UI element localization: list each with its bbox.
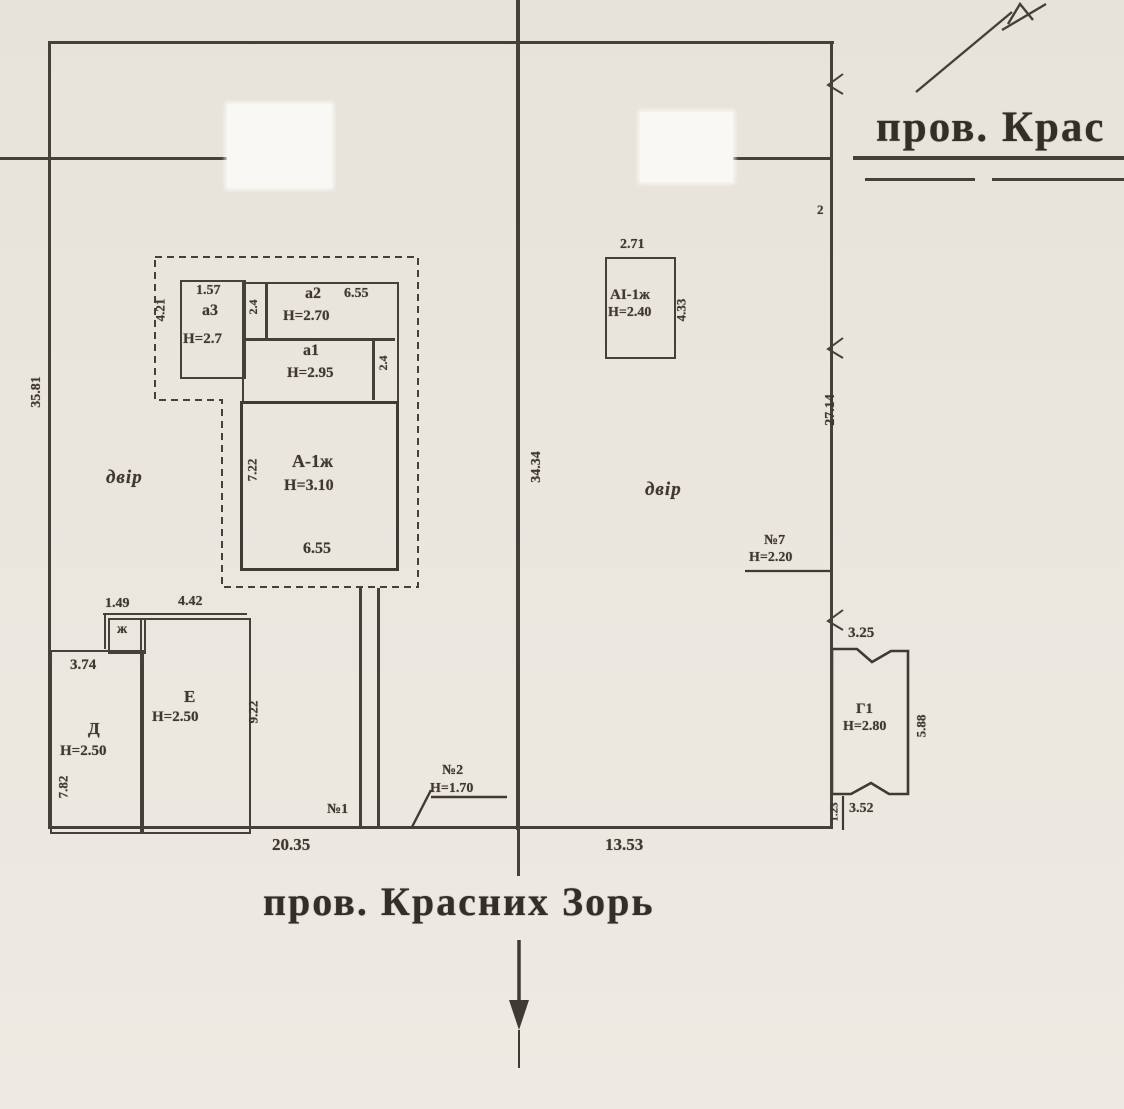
d-label: Д <box>88 720 100 737</box>
d-height: Н=2.50 <box>60 744 106 759</box>
street-line-dash-1 <box>865 178 975 181</box>
dim-road: 34.34 <box>530 451 544 483</box>
a1-label: а1 <box>303 343 319 359</box>
redaction-patch <box>640 112 733 182</box>
ai-width-dim: 2.71 <box>620 238 645 252</box>
road-centerline <box>516 0 520 830</box>
a3-height: Н=2.7 <box>183 332 222 347</box>
e-label: Е <box>184 688 195 705</box>
dim-bottom-right: 13.53 <box>605 836 643 853</box>
e-side-dim: 9.22 <box>247 701 260 724</box>
road-centerline-lower <box>517 830 520 876</box>
e-top-dim-2: 4.42 <box>178 595 203 609</box>
street-line-dash-2 <box>992 178 1124 181</box>
road-arrow-head <box>509 1000 529 1030</box>
d-top-dim: 3.74 <box>70 658 96 673</box>
ai-label: АІ-1ж <box>610 288 650 303</box>
boundary-point-number: 2 <box>817 203 824 216</box>
linework-overlay <box>0 0 1124 1109</box>
a3-side-dim: 4.21 <box>154 299 167 322</box>
gate-1-label: №1 <box>327 803 348 817</box>
yard-label-left: двір <box>106 468 143 487</box>
street-line-top-mid <box>733 157 832 160</box>
a3-width-dim: 1.57 <box>196 284 221 298</box>
zh-label: ж <box>117 623 127 637</box>
building-d-outline <box>50 650 144 834</box>
g1-side-dim: 5.88 <box>915 715 928 738</box>
g1-bottom-dim: 3.52 <box>849 802 874 816</box>
a1-strip-dim: 2.4 <box>377 356 389 371</box>
yard-label-right: двір <box>645 480 682 499</box>
a2-label: а2 <box>305 286 321 302</box>
dim-bottom-left: 20.35 <box>272 836 310 853</box>
dim-right-boundary: 27.14 <box>824 394 838 426</box>
plot-boundary-top <box>48 41 834 44</box>
a2-strip-dim: 2.4 <box>247 300 259 315</box>
scanned-site-plan: пров. Крас пров. Красних Зорь 35.81 34.3… <box>0 0 1124 1109</box>
a1-height: Н=2.95 <box>287 366 333 381</box>
building-e-outline <box>140 618 251 834</box>
ai-side-dim: 4.33 <box>675 299 688 322</box>
a-main-side-dim: 7.22 <box>246 459 259 482</box>
survey-diagonal-lines <box>916 4 1046 92</box>
g1-notch-dim: 1.23 <box>830 802 841 821</box>
e-top-dim-1: 1.49 <box>105 597 130 611</box>
street-line-top-left <box>0 157 228 160</box>
gate-1-line <box>377 588 380 827</box>
redaction-patch <box>227 104 332 188</box>
street-name-bottom: пров. Красних Зорь <box>263 882 655 922</box>
a2-width-dim: 6.55 <box>344 287 369 301</box>
e-top-dim-tick <box>104 613 106 649</box>
d-side-dim: 7.82 <box>57 776 70 799</box>
a3-label: а3 <box>202 303 218 319</box>
gate-1-line <box>359 588 362 827</box>
e-height: Н=2.50 <box>152 710 198 725</box>
a-main-label: А-1ж <box>292 452 333 470</box>
street-name-top: пров. Крас <box>876 106 1106 149</box>
fence-7-label: №7 <box>764 534 785 548</box>
e-top-dim-line <box>103 613 247 615</box>
g1-top-dim: 3.25 <box>848 626 874 641</box>
g1-height: Н=2.80 <box>843 720 886 734</box>
dim-left-boundary: 35.81 <box>30 376 44 408</box>
a-main-width-dim: 6.55 <box>303 541 331 557</box>
a2-strip-divider <box>265 282 268 338</box>
g1-label: Г1 <box>856 702 873 717</box>
a1-strip-divider <box>372 338 375 400</box>
gate-2-height: Н=1.70 <box>430 782 473 796</box>
gate-2-label: №2 <box>442 764 463 778</box>
a-main-height: Н=3.10 <box>284 478 334 494</box>
a2-height: Н=2.70 <box>283 309 329 324</box>
fence-7-height: Н=2.20 <box>749 551 792 565</box>
street-line-top-right <box>853 156 1124 160</box>
ai-height: Н=2.40 <box>608 306 651 320</box>
